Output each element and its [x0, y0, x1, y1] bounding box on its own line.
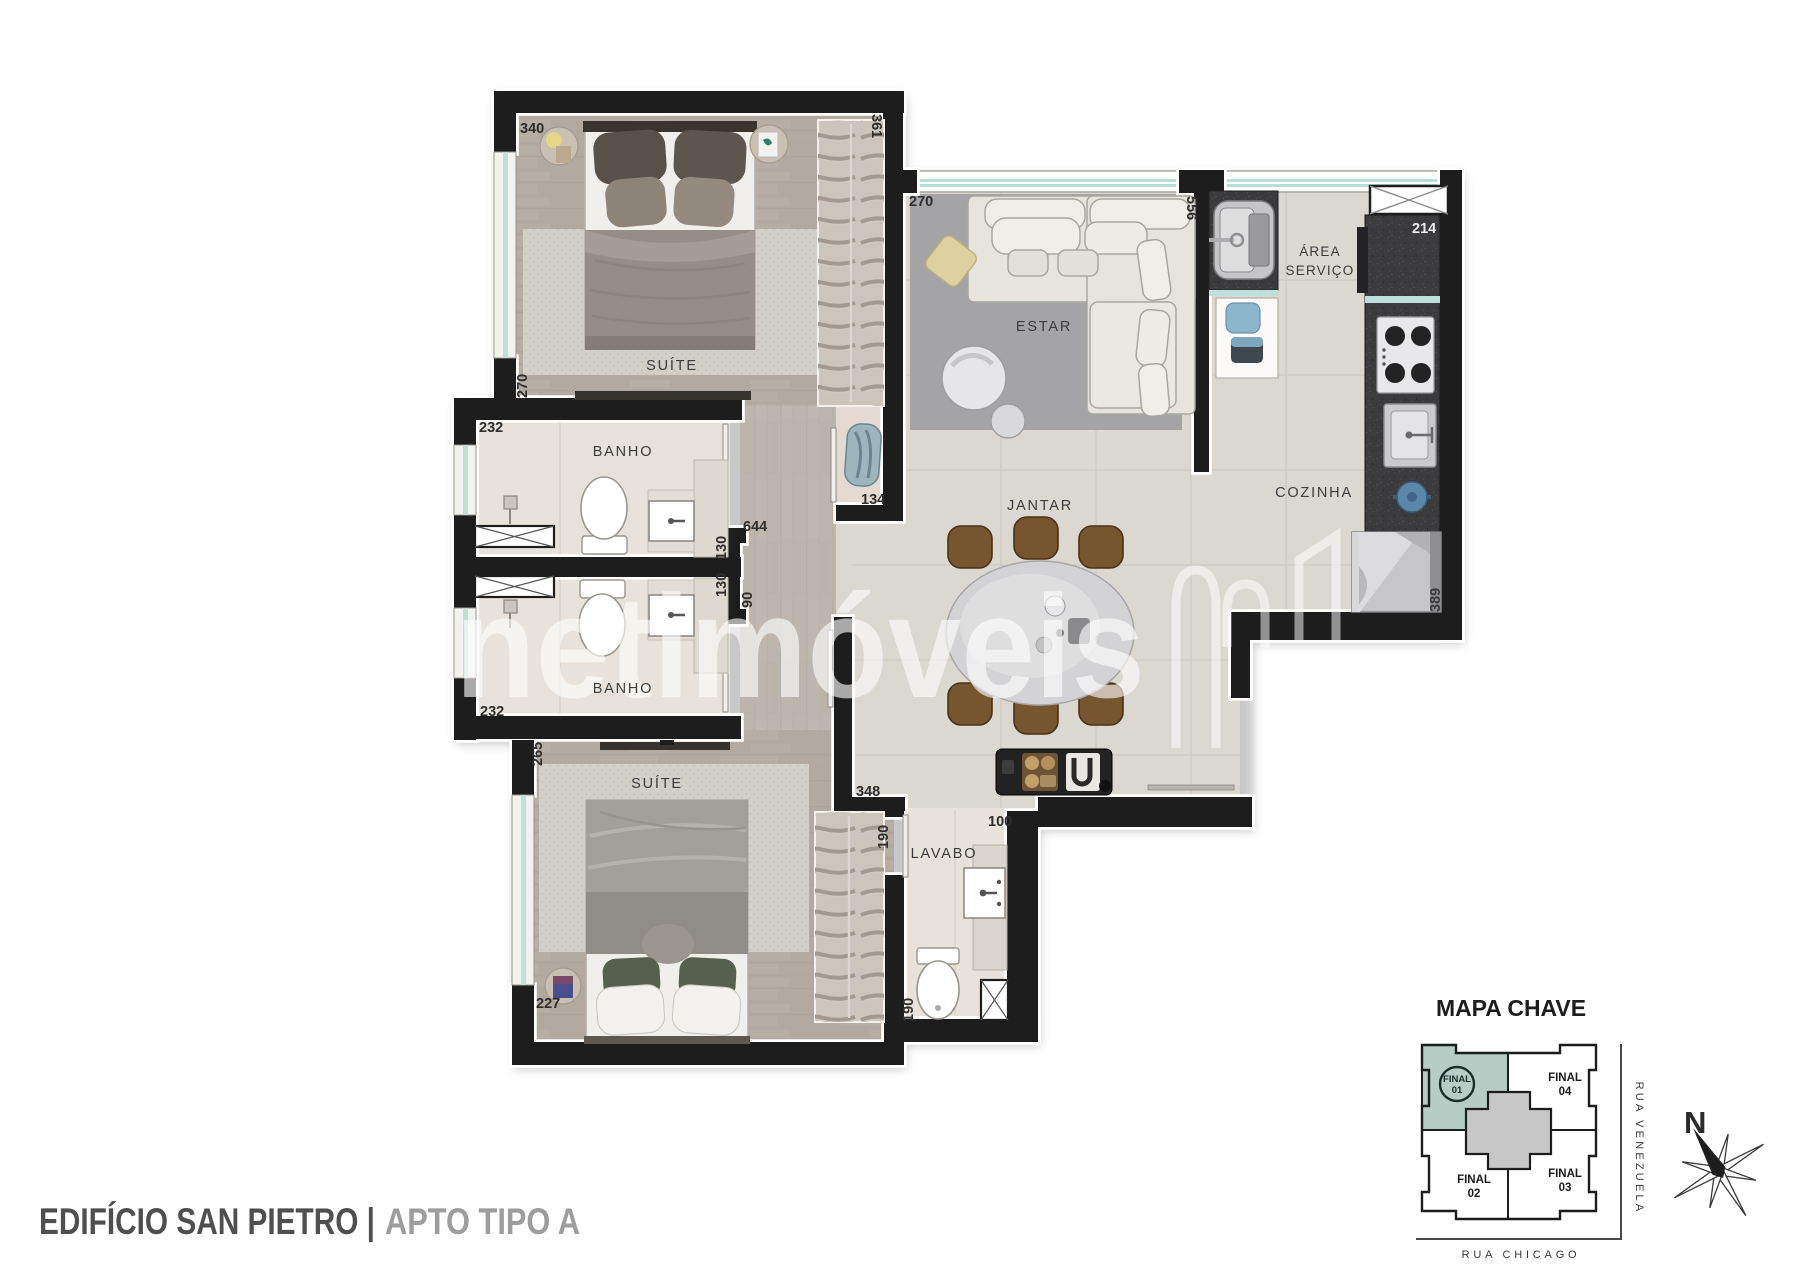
svg-text:ÁREA: ÁREA: [1299, 244, 1341, 259]
svg-text:SERVIÇO: SERVIÇO: [1286, 263, 1355, 278]
svg-text:130: 130: [714, 573, 730, 597]
svg-text:270: 270: [515, 374, 531, 398]
svg-text:214: 214: [1412, 221, 1436, 237]
svg-text:LAVABO: LAVABO: [911, 846, 978, 862]
svg-text:BANHO: BANHO: [593, 444, 654, 460]
svg-text:227: 227: [536, 996, 560, 1012]
svg-text:FINAL: FINAL: [1443, 1074, 1471, 1085]
svg-text:MAPA CHAVE: MAPA CHAVE: [1436, 995, 1586, 1021]
svg-text:361: 361: [868, 114, 884, 138]
svg-text:FINAL: FINAL: [1548, 1168, 1582, 1180]
svg-text:348: 348: [856, 784, 880, 800]
svg-text:644: 644: [743, 519, 767, 535]
svg-text:02: 02: [1468, 1188, 1481, 1200]
svg-text:RUA CHICAGO: RUA CHICAGO: [1462, 1249, 1581, 1261]
svg-text:COZINHA: COZINHA: [1275, 485, 1353, 501]
svg-text:JANTAR: JANTAR: [1007, 498, 1073, 514]
svg-text:ESTAR: ESTAR: [1016, 319, 1072, 335]
svg-text:190: 190: [876, 825, 892, 849]
svg-text:556: 556: [1183, 196, 1199, 220]
svg-text:340: 340: [520, 121, 544, 137]
svg-text:FINAL: FINAL: [1457, 1174, 1491, 1186]
svg-text:netimóveis: netimóveis: [455, 565, 1145, 728]
svg-text:SUÍTE: SUÍTE: [646, 357, 698, 374]
svg-text:03: 03: [1559, 1182, 1572, 1194]
svg-text:232: 232: [480, 704, 504, 720]
svg-text:BANHO: BANHO: [593, 681, 654, 697]
svg-text:270: 270: [909, 194, 933, 210]
svg-text:RUA VENEZUELA: RUA VENEZUELA: [1633, 1082, 1645, 1215]
svg-text:01: 01: [1452, 1085, 1463, 1096]
svg-text:90: 90: [740, 592, 756, 608]
svg-text:04: 04: [1559, 1086, 1572, 1098]
svg-text:APTO TIPO A: APTO TIPO A: [385, 1201, 580, 1242]
svg-text:FINAL: FINAL: [1548, 1072, 1582, 1084]
svg-text:265: 265: [530, 742, 546, 766]
svg-text:SUÍTE: SUÍTE: [631, 775, 683, 792]
svg-text:N: N: [1684, 1105, 1706, 1140]
svg-text:389: 389: [1428, 588, 1444, 612]
svg-text:190: 190: [901, 998, 917, 1022]
svg-text:100: 100: [988, 814, 1012, 830]
svg-text:134: 134: [861, 492, 885, 508]
svg-text:232: 232: [479, 420, 503, 436]
svg-text:EDIFÍCIO SAN PIETRO |: EDIFÍCIO SAN PIETRO |: [39, 1201, 375, 1243]
svg-text:130: 130: [714, 536, 730, 560]
